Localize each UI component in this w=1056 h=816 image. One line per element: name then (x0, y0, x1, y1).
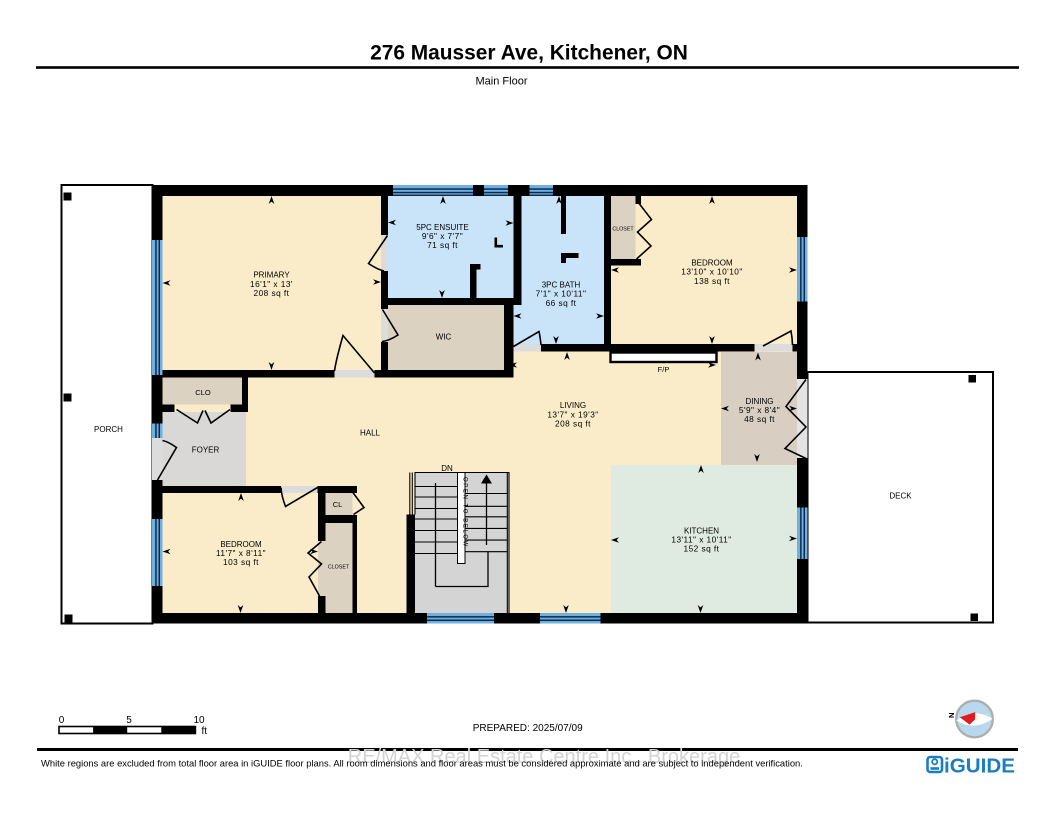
svg-text:48 sq ft: 48 sq ft (744, 414, 775, 424)
svg-text:DECK: DECK (889, 492, 912, 501)
svg-text:71 sq ft: 71 sq ft (427, 240, 458, 250)
svg-text:103 sq ft: 103 sq ft (223, 557, 259, 567)
svg-text:OPEN TO BELOW: OPEN TO BELOW (462, 477, 468, 548)
svg-text:DN: DN (441, 464, 453, 473)
svg-text:N: N (947, 712, 956, 717)
svg-text:PREPARED: 2025/07/09: PREPARED: 2025/07/09 (473, 723, 583, 734)
svg-text:FOYER: FOYER (192, 446, 220, 455)
svg-text:PORCH: PORCH (94, 425, 123, 434)
svg-text:Main Floor: Main Floor (476, 76, 528, 88)
svg-text:10: 10 (193, 715, 205, 726)
svg-text:138 sq ft: 138 sq ft (694, 276, 730, 286)
svg-text:CLO: CLO (195, 388, 211, 397)
svg-text:CL: CL (333, 500, 343, 509)
svg-text:208 sq ft: 208 sq ft (555, 418, 591, 428)
svg-text:HALL: HALL (360, 429, 381, 438)
svg-text:276 Mausser Ave, Kitchener, ON: 276 Mausser Ave, Kitchener, ON (370, 42, 688, 65)
svg-text:WIC: WIC (436, 333, 452, 342)
svg-text:208 sq ft: 208 sq ft (254, 288, 290, 298)
svg-text:ft: ft (202, 726, 208, 737)
svg-text:0: 0 (59, 715, 65, 726)
svg-text:CLOSET: CLOSET (328, 565, 350, 571)
svg-text:5: 5 (126, 715, 132, 726)
svg-text:66 sq ft: 66 sq ft (546, 298, 577, 308)
svg-text:152 sq ft: 152 sq ft (684, 544, 720, 554)
svg-text:White regions are excluded fro: White regions are excluded from total fl… (41, 758, 803, 769)
svg-text:F/P: F/P (658, 365, 670, 374)
svg-text:CLOSET: CLOSET (612, 227, 634, 233)
svg-text:iGUIDE: iGUIDE (944, 754, 1015, 777)
